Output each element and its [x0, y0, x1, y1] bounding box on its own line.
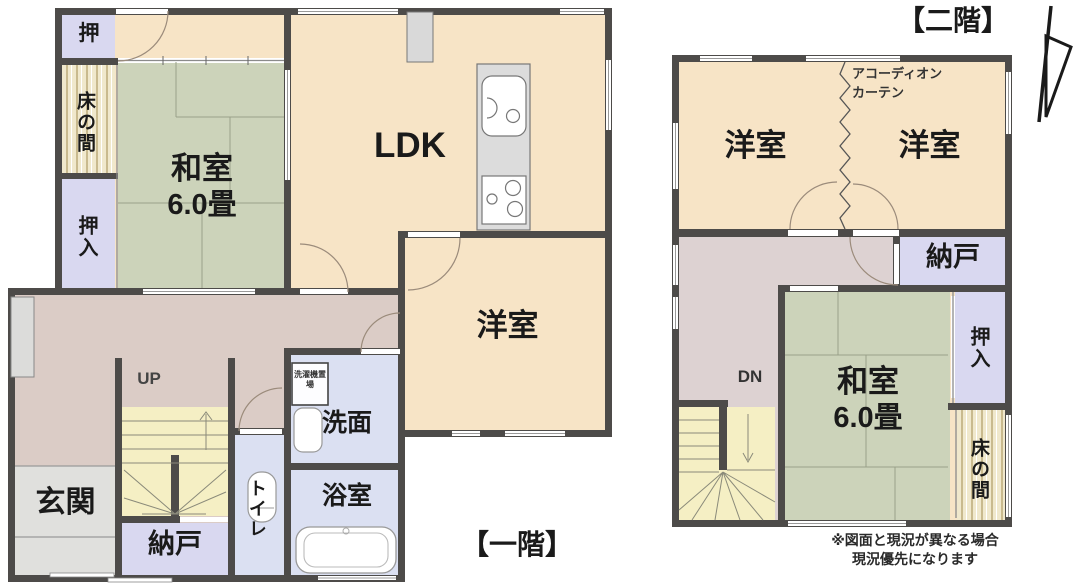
disclaimer-line-2: 現況優先になります — [790, 552, 1040, 567]
label-nando-2f: 納戸 — [903, 243, 1003, 271]
label-nando-1f: 納戸 — [126, 530, 224, 558]
label-washer-space: 洗濯機置場 — [294, 370, 326, 391]
label-yoshitsu-2f-left: 洋室 — [698, 130, 813, 163]
north-arrow-icon — [1039, 6, 1071, 122]
label-yoshitsu-2f-right: 洋室 — [872, 130, 987, 163]
label-washitsu-2f-size: 6.0畳 — [788, 403, 948, 433]
room-stairs-2f — [679, 407, 775, 520]
label-oshiire-2f: 押入 — [967, 300, 988, 395]
disclaimer-line-1: ※図面と現況が異なる場合 — [790, 533, 1040, 548]
floor-plan-canvas: 押 床の間 押入 和室 6.0畳 LDK 洋室 UP 玄関 納戸 トイレ 洗面 … — [0, 0, 1080, 588]
north-arrow-head — [1046, 36, 1071, 117]
label-oshiire-1f: 押入 — [75, 197, 96, 277]
label-washitsu-1f-size: 6.0畳 — [122, 190, 282, 220]
label-senmen: 洗面 — [302, 410, 392, 436]
label-washitsu-2f: 和室 — [788, 366, 948, 399]
room-genkan — [15, 466, 115, 575]
room-stairs-1f — [122, 407, 228, 516]
label-up: UP — [128, 370, 170, 388]
label-dn: DN — [728, 368, 772, 386]
label-yoshitsu-1f: 洋室 — [450, 310, 565, 343]
label-first-floor: 【一階】 — [432, 530, 602, 559]
label-washitsu-1f: 和室 — [122, 153, 282, 186]
label-curtain-1: アコーディオン — [852, 67, 1012, 81]
label-tokonoma-2f: 床の間 — [968, 422, 988, 517]
north-arrow-shaft — [1039, 6, 1051, 122]
room-hallway-2f-strip — [679, 237, 893, 292]
label-oshi: 押 — [72, 23, 106, 45]
label-curtain-2: カーテン — [852, 86, 1012, 100]
label-ldk: LDK — [355, 128, 465, 165]
label-second-floor: 【二階】 — [878, 6, 1028, 35]
label-yokushitsu: 浴室 — [302, 483, 392, 509]
label-genkan: 玄関 — [18, 487, 113, 519]
label-toilet: トイレ — [247, 453, 266, 565]
label-tokonoma-1f: 床の間 — [74, 76, 94, 168]
